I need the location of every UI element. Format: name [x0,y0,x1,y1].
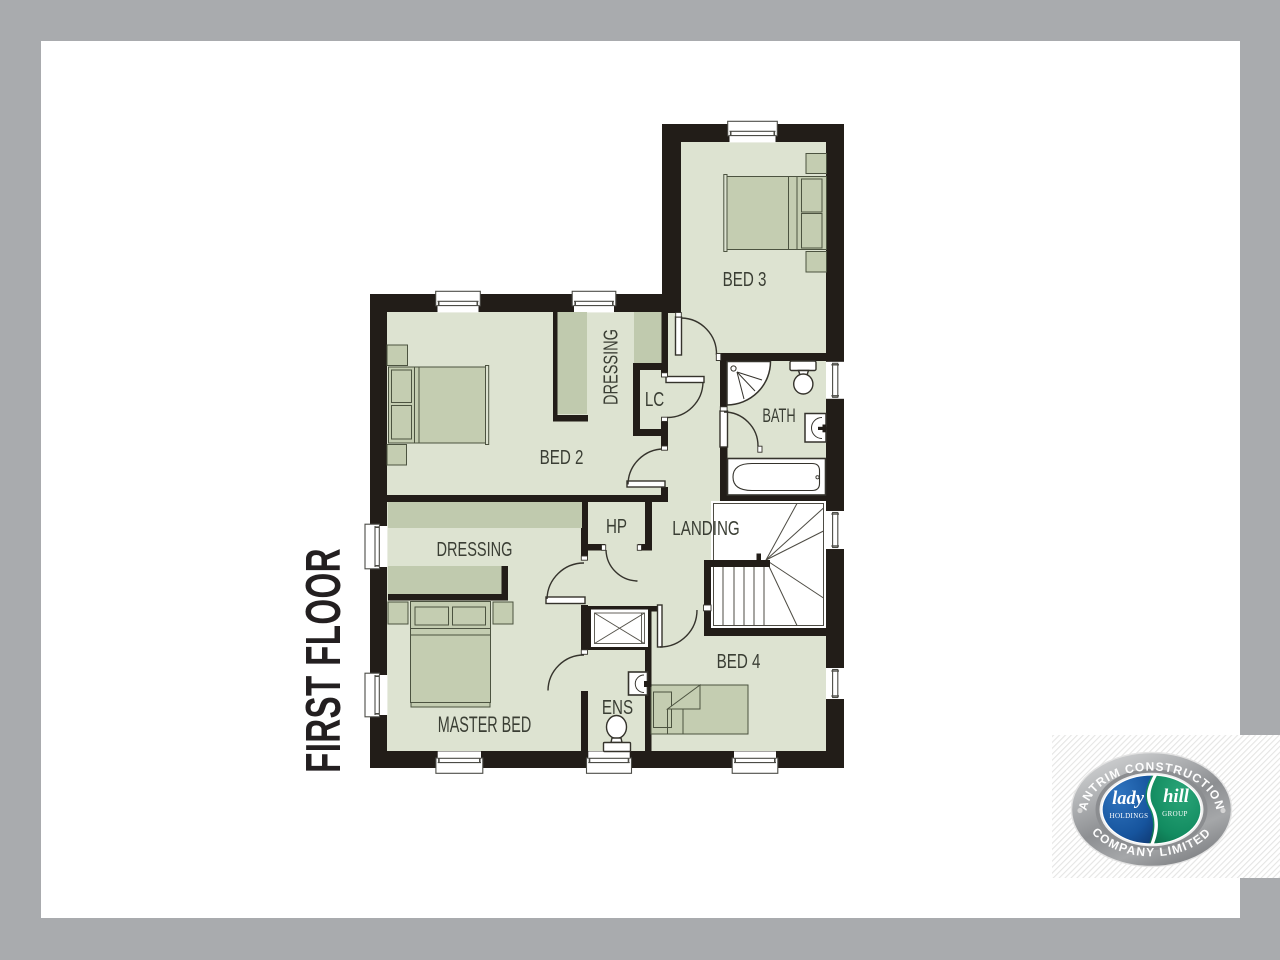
svg-text:LC: LC [645,388,664,411]
svg-text:BED 3: BED 3 [723,268,767,291]
svg-text:HOLDINGS: HOLDINGS [1110,812,1149,820]
svg-text:BED 2: BED 2 [540,446,584,469]
svg-text:BED 4: BED 4 [717,650,761,673]
svg-text:BATH: BATH [762,404,795,426]
svg-text:lady: lady [1112,789,1145,809]
svg-text:DRESSING: DRESSING [599,329,622,405]
svg-text:MASTER BED: MASTER BED [438,713,532,738]
svg-text:ENS: ENS [602,696,633,719]
svg-text:hill: hill [1163,787,1190,807]
svg-text:LANDING: LANDING [672,517,739,540]
svg-text:HP: HP [606,515,627,538]
svg-text:GROUP: GROUP [1162,810,1188,818]
svg-text:FIRST FLOOR: FIRST FLOOR [295,548,350,773]
svg-text:DRESSING: DRESSING [437,538,513,561]
